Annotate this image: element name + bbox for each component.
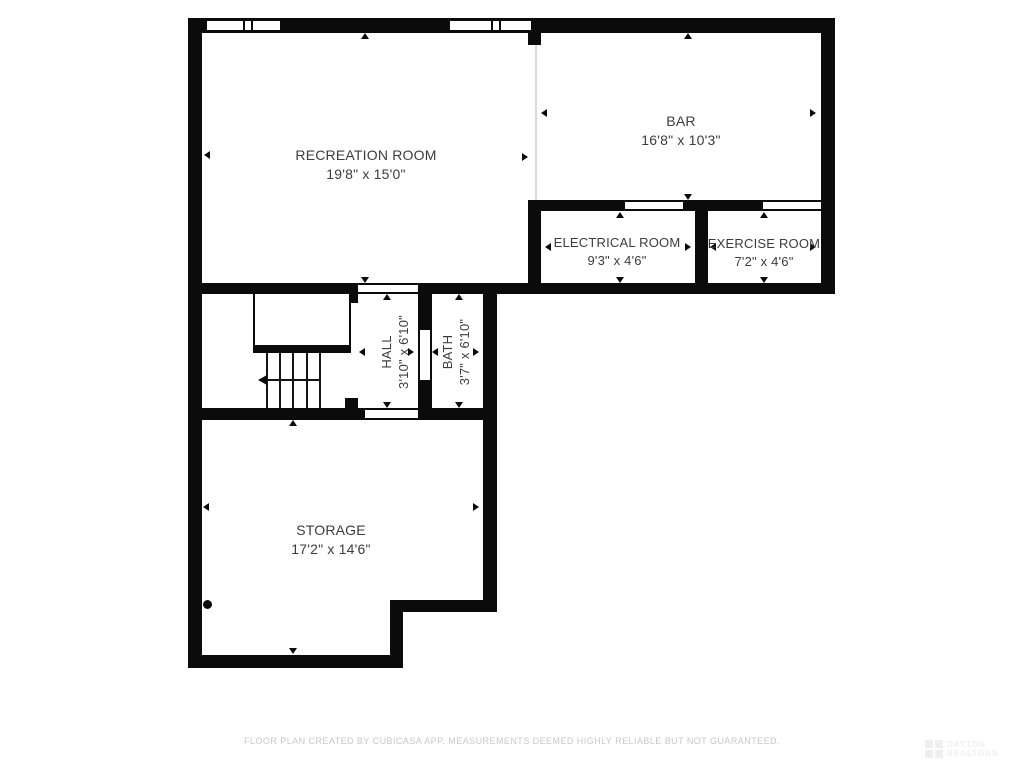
- realtor-watermark-text: DAYTON REALTORS: [947, 740, 998, 758]
- room-name: STORAGE: [291, 521, 370, 540]
- opening-electrical: [625, 200, 683, 202]
- dimension-arrow: [545, 243, 551, 251]
- room-name: HALL: [378, 315, 395, 389]
- dimension-arrow: [383, 402, 391, 408]
- footer-disclaimer: FLOOR PLAN CREATED BY CUBICASA APP. MEAS…: [0, 736, 1024, 746]
- dimension-arrow: [685, 243, 691, 251]
- dimension-arrow: [473, 348, 479, 356]
- room-label-electrical: ELECTRICAL ROOM 9'3" x 4'6": [554, 234, 681, 270]
- stair-landing: [253, 294, 351, 345]
- dimension-arrow: [684, 33, 692, 39]
- wall-storage-notch-horizontal: [390, 600, 497, 612]
- window-mullion: [243, 21, 245, 30]
- dimension-arrow: [760, 212, 768, 218]
- wall-electrical-exercise-divider: [695, 200, 708, 294]
- wall-mid-horizontal-right: [418, 283, 835, 294]
- opening-hall-top: [358, 283, 418, 285]
- dimension-arrow: [432, 348, 438, 356]
- wall-storage-bottom: [188, 655, 403, 668]
- dimension-arrow: [383, 294, 391, 300]
- wall-top-bar: [535, 18, 835, 33]
- opening-exercise: [763, 209, 821, 211]
- room-dimensions: 9'3" x 4'6": [554, 252, 681, 270]
- room-label-bar: BAR 16'8" x 10'3": [641, 112, 720, 150]
- room-label-exercise: EXERCISE ROOM 7'2" x 4'6": [708, 235, 820, 271]
- watermark-line2: REALTORS: [947, 749, 998, 758]
- opening-hall-bottom: [365, 418, 418, 420]
- room-dimensions: 17'2" x 14'6": [291, 540, 370, 559]
- wall-bath-bottom: [418, 408, 497, 420]
- room-label-bath: BATH 3'7" x 6'10": [439, 319, 473, 385]
- dimension-arrow: [361, 33, 369, 39]
- dimension-arrow: [359, 348, 365, 356]
- window: [205, 19, 282, 32]
- wall-mid-horizontal-left: [188, 283, 358, 294]
- opening-hall-bottom: [365, 408, 418, 410]
- room-label-storage: STORAGE 17'2" x 14'6": [291, 521, 370, 559]
- room-dimensions: 19'8" x 15'0": [295, 165, 436, 184]
- dimension-arrow: [473, 503, 479, 511]
- dimension-arrow: [455, 402, 463, 408]
- room-dimensions: 3'10" x 6'10": [395, 315, 412, 389]
- room-name: BAR: [641, 112, 720, 131]
- dimension-arrow: [522, 153, 528, 161]
- dimension-arrow: [541, 109, 547, 117]
- stair-landing-edge: [253, 345, 351, 353]
- dimension-arrow: [204, 151, 210, 159]
- wall-left-outer: [188, 18, 202, 668]
- wall-bar-bottom-left: [535, 200, 625, 211]
- stair-direction-line: [266, 379, 320, 381]
- room-dimensions: 7'2" x 4'6": [708, 253, 820, 271]
- opening-exercise: [763, 200, 821, 202]
- dimension-arrow: [455, 294, 463, 300]
- dimension-arrow: [289, 420, 297, 426]
- room-dimensions: 16'8" x 10'3": [641, 131, 720, 150]
- room-name: BATH: [439, 319, 456, 385]
- stair-direction-arrow: [258, 375, 267, 385]
- watermark-line1: DAYTON: [947, 740, 998, 749]
- dimension-arrow: [616, 212, 624, 218]
- dimension-arrow: [684, 194, 692, 200]
- room-name: EXERCISE ROOM: [708, 235, 820, 253]
- wall-stairs-bottom: [188, 408, 365, 420]
- room-dimensions: 3'7" x 6'10": [456, 319, 473, 385]
- wall-right-outer: [821, 18, 835, 294]
- dimension-arrow: [289, 648, 297, 654]
- support-column: [203, 600, 212, 609]
- realtor-watermark: DAYTON REALTORS: [925, 740, 998, 758]
- window-mullion: [491, 21, 493, 30]
- dimension-arrow: [361, 277, 369, 283]
- wall-hall-bath-divider-top: [418, 294, 432, 330]
- window-mullion: [251, 21, 253, 30]
- window: [448, 19, 533, 32]
- opening-electrical: [625, 209, 683, 211]
- dimension-arrow: [810, 109, 816, 117]
- door-hall-bath: [418, 330, 420, 380]
- dimension-arrow: [203, 503, 209, 511]
- wall-electrical-left: [528, 200, 541, 294]
- floorplan-canvas: RECREATION ROOM 19'8" x 15'0" BAR 16'8" …: [0, 0, 1024, 768]
- wall-bath-storage-right: [483, 294, 497, 612]
- dimension-arrow: [616, 277, 624, 283]
- realtor-logo-icon: [925, 740, 943, 758]
- room-label-hall: HALL 3'10" x 6'10": [378, 315, 412, 389]
- dimension-arrow: [760, 277, 768, 283]
- room-name: RECREATION ROOM: [295, 146, 436, 165]
- window-mullion: [499, 21, 501, 30]
- room-divider-line: [535, 45, 537, 200]
- room-name: ELECTRICAL ROOM: [554, 234, 681, 252]
- room-label-recreation: RECREATION ROOM 19'8" x 15'0": [295, 146, 436, 184]
